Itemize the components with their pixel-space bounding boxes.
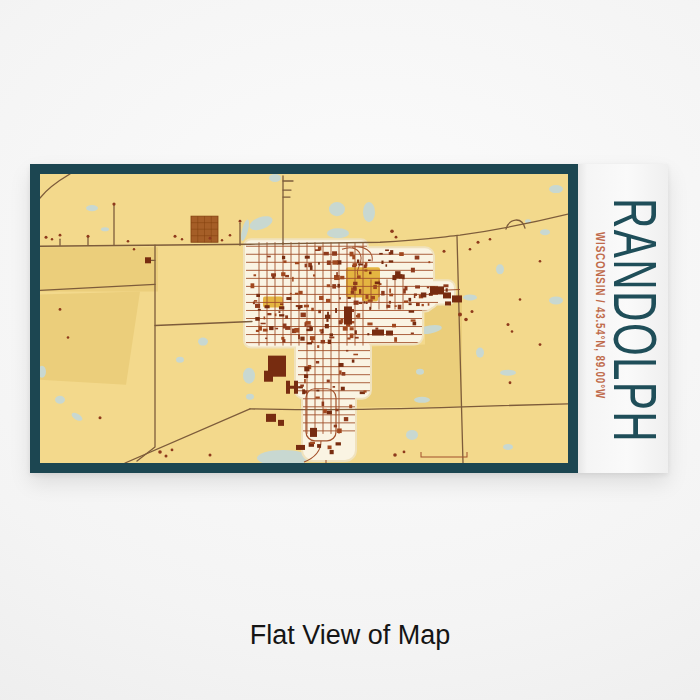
map-print-product[interactable]: RANDOLPH WISCONSIN / 43.54°N, 89.00°W xyxy=(30,164,668,473)
print-spine-panel: RANDOLPH WISCONSIN / 43.54°N, 89.00°W xyxy=(578,164,668,473)
map-frame xyxy=(30,164,578,473)
city-name-label: RANDOLPH xyxy=(604,198,666,443)
coordinates-label: WISCONSIN / 43.54°N, 89.00°W xyxy=(594,232,606,399)
view-caption: Flat View of Map xyxy=(0,620,700,651)
map-graphic xyxy=(40,174,568,463)
